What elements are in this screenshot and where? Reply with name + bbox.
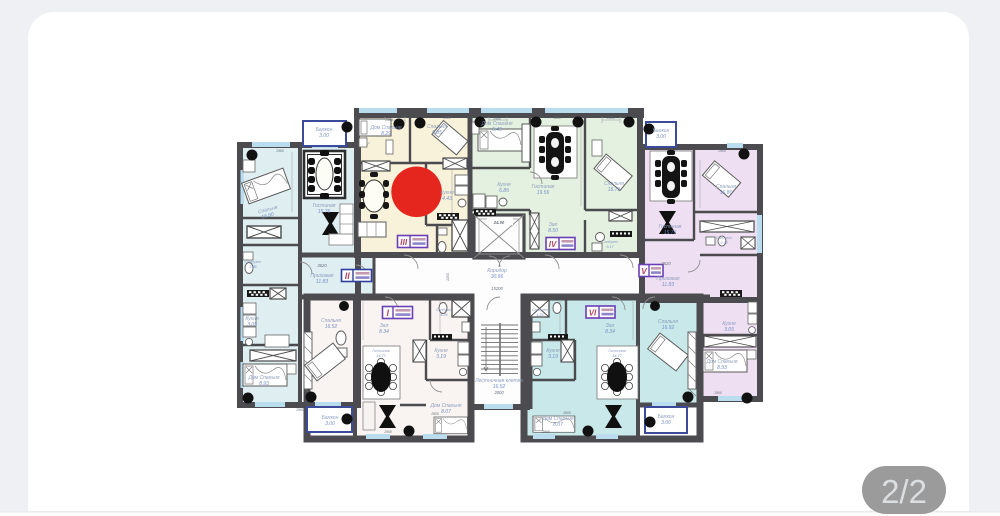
svg-text:2900: 2900 [295, 408, 304, 412]
svg-text:8.34: 8.34 [605, 329, 615, 335]
svg-text:11.83: 11.83 [662, 282, 674, 288]
svg-text:15.76: 15.76 [318, 209, 331, 215]
svg-text:3.00: 3.00 [656, 134, 666, 140]
svg-text:VI: VI [589, 309, 597, 318]
svg-text:5.85: 5.85 [432, 130, 442, 136]
svg-text:Сандузел: Сандузел [602, 240, 618, 244]
svg-text:3.00: 3.00 [661, 420, 671, 426]
svg-text:2200: 2200 [446, 273, 450, 282]
svg-text:2980: 2980 [275, 149, 284, 153]
svg-text:6.45: 6.45 [492, 127, 502, 133]
svg-text:8.29: 8.29 [381, 131, 391, 137]
svg-text:16.71: 16.71 [608, 187, 621, 193]
svg-text:2/2: 2/2 [881, 473, 927, 510]
svg-text:3.05: 3.05 [247, 322, 257, 328]
svg-text:30.96: 30.96 [491, 274, 504, 280]
svg-text:2.08: 2.08 [249, 265, 257, 269]
svg-text:2900: 2900 [606, 116, 615, 120]
svg-text:2900: 2900 [541, 430, 550, 434]
svg-text:14.77: 14.77 [376, 354, 386, 358]
svg-text:8.93: 8.93 [717, 365, 727, 371]
svg-text:3.00: 3.00 [319, 133, 329, 139]
svg-text:4.25: 4.25 [441, 313, 448, 317]
svg-text:3.19: 3.19 [548, 354, 558, 360]
svg-text:3.00: 3.00 [325, 421, 335, 427]
svg-text:3.19: 3.19 [436, 354, 446, 360]
svg-text:16.80: 16.80 [720, 190, 733, 196]
svg-text:2900: 2900 [717, 149, 726, 153]
svg-text:3620: 3620 [661, 261, 671, 266]
svg-text:2980: 2980 [384, 118, 393, 122]
svg-text:2900: 2900 [383, 430, 392, 434]
svg-text:19.56: 19.56 [537, 190, 550, 196]
svg-text:2800: 2800 [430, 412, 439, 416]
svg-text:14.77: 14.77 [612, 354, 622, 358]
svg-text:Гостиная: Гостиная [372, 349, 389, 353]
svg-text:Сандузел: Сандузел [716, 236, 732, 240]
svg-text:3300: 3300 [443, 116, 451, 120]
svg-text:8.34: 8.34 [379, 329, 389, 335]
svg-text:5.17: 5.17 [607, 245, 615, 249]
svg-text:2800: 2800 [493, 390, 504, 395]
svg-text:8.07: 8.07 [441, 409, 451, 415]
svg-text:8.93: 8.93 [259, 381, 269, 387]
svg-text:3620: 3620 [317, 263, 327, 268]
svg-text:2900: 2900 [713, 391, 722, 395]
svg-text:15200: 15200 [491, 286, 503, 291]
svg-text:2800: 2800 [562, 411, 571, 415]
svg-text:II: II [345, 271, 351, 281]
svg-text:24.00: 24.00 [493, 220, 505, 225]
svg-text:3.05: 3.05 [724, 327, 734, 333]
svg-text:Сандузел: Сандузел [436, 308, 452, 312]
svg-text:16.52: 16.52 [325, 324, 338, 330]
svg-text:Сандузел: Сандузел [532, 308, 548, 312]
svg-text:IV: IV [549, 240, 557, 249]
svg-text:Сандузел: Сандузел [245, 260, 261, 264]
svg-text:2.73: 2.73 [720, 241, 728, 245]
svg-text:11.83: 11.83 [316, 279, 328, 285]
svg-text:4.25: 4.25 [537, 313, 544, 317]
svg-text:16.92: 16.92 [662, 325, 675, 331]
svg-text:4.43: 4.43 [442, 196, 452, 202]
svg-text:15.76: 15.76 [664, 230, 677, 236]
svg-text:III: III [400, 237, 408, 247]
svg-text:2980: 2980 [492, 117, 501, 121]
svg-text:8.50: 8.50 [548, 228, 558, 234]
svg-text:Гостиная: Гостиная [608, 349, 625, 353]
svg-text:3300: 3300 [553, 116, 561, 120]
svg-text:6.85: 6.85 [499, 188, 509, 194]
svg-text:8.07: 8.07 [553, 422, 563, 428]
